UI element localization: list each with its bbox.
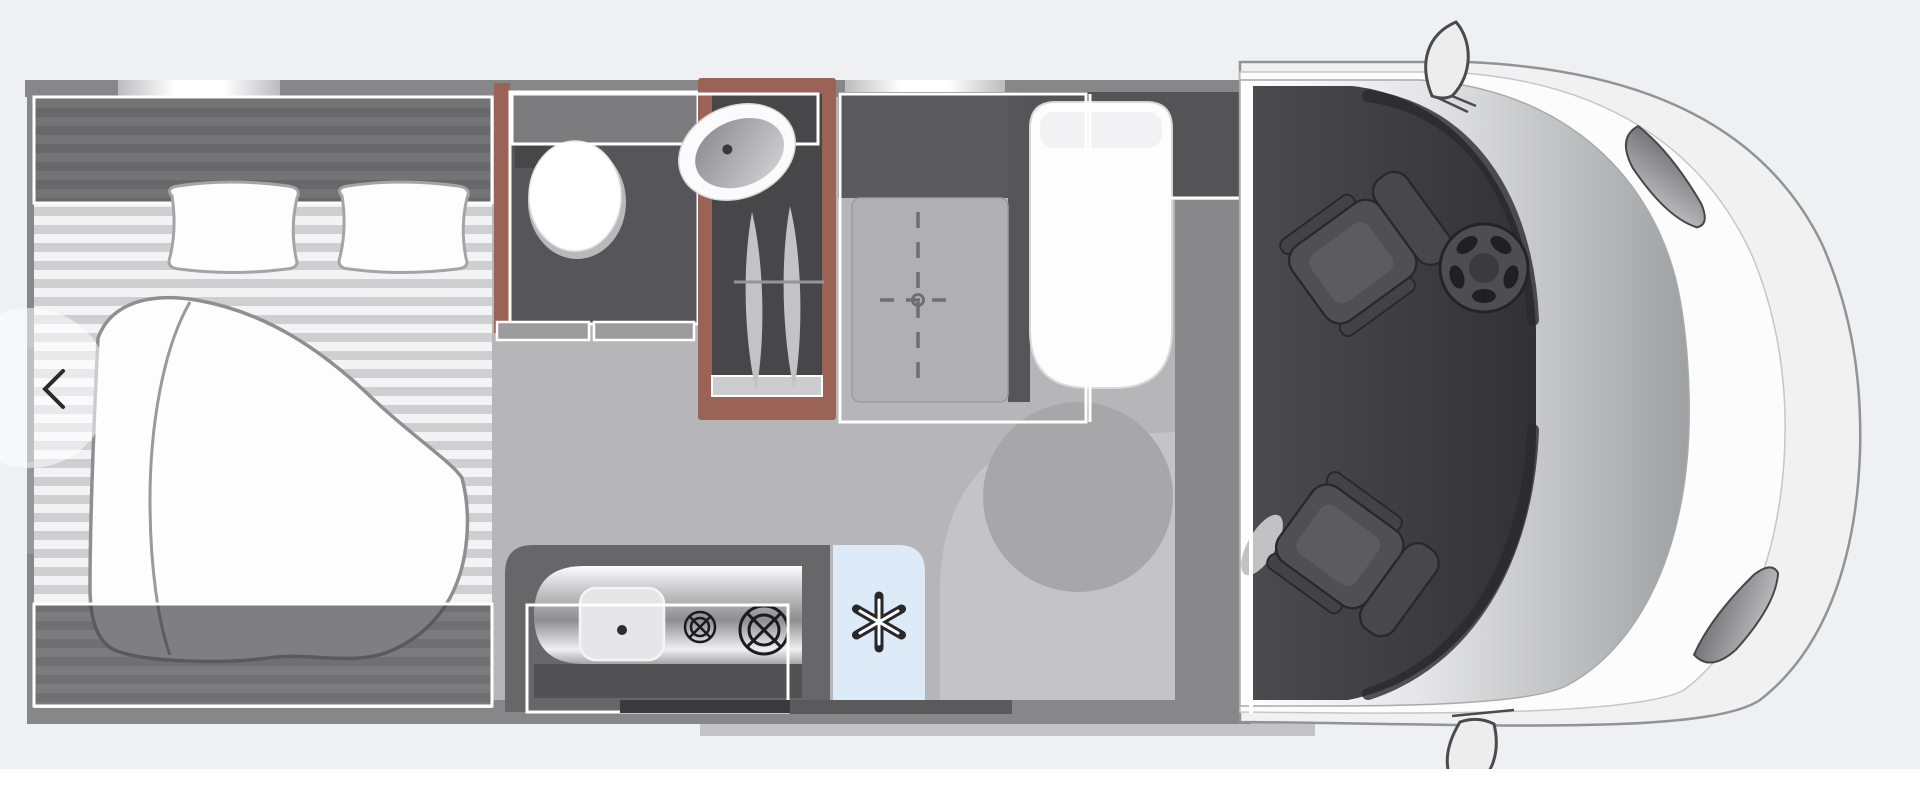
bathroom-door-sill-right [594,322,694,340]
fridge [833,545,925,700]
pillow-left [169,182,298,273]
bed-foot-overhang [34,604,492,706]
sink-drain [617,625,627,635]
steering-wheel-icon [1440,224,1528,312]
toilet [529,141,621,251]
bathroom-overhead-cabinet [510,92,698,144]
shower-tray-sill [712,376,822,396]
motorhome-floorplan-view: ‹ [0,0,1920,795]
dinette-table [852,198,1008,402]
bathroom-wood-wall [494,83,510,333]
swivel-floor-circle [983,402,1173,592]
bathroom [494,83,698,340]
bench-backrest [1040,112,1162,148]
window-top-rear [118,80,280,97]
chevron-left-icon [0,308,110,468]
floorplan-drawing [0,0,1920,795]
bathroom-door-sill-left [497,322,589,340]
cab-and-nose [1233,22,1860,792]
table-side-cabinet [1008,95,1030,402]
carousel-prev-button[interactable]: ‹ [0,308,110,468]
entry-step [790,700,1012,714]
kitchen-plinth [620,700,790,713]
pillow-right [339,182,468,273]
kitchen-sink [580,588,664,660]
page-footer-strip [0,769,1920,795]
kitchen-unit-shade [534,664,802,698]
